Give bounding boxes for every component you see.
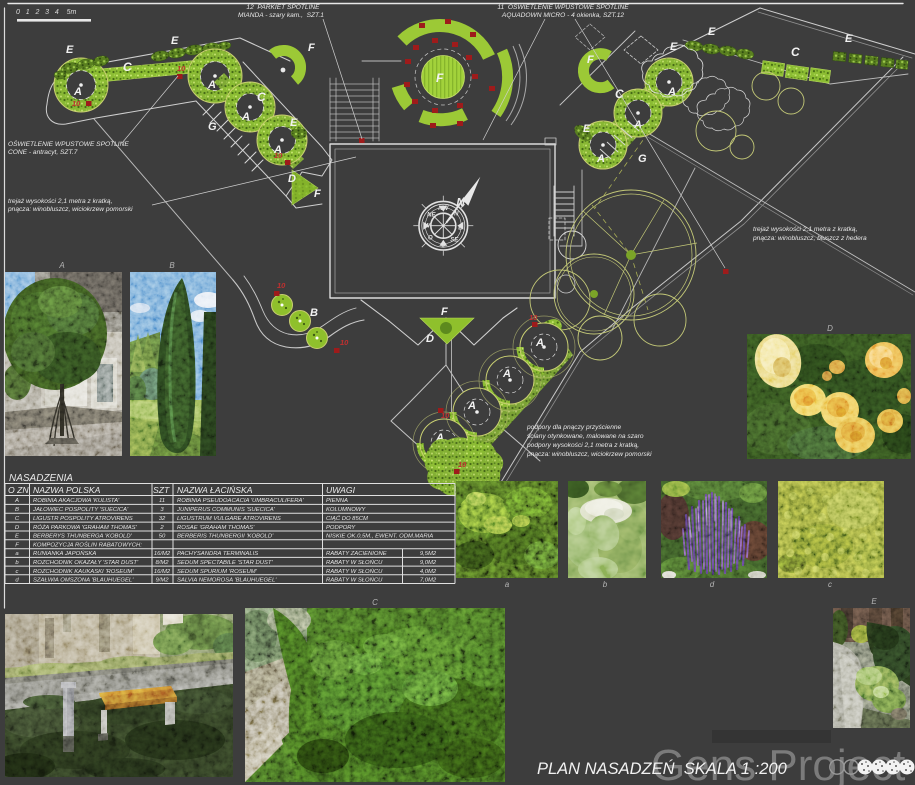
svg-text:10: 10 — [529, 313, 538, 322]
svg-text:ROSAE 'GRAHAM THOMAS': ROSAE 'GRAHAM THOMAS' — [177, 525, 255, 531]
svg-text:B: B — [15, 507, 19, 513]
svg-text:B: B — [169, 261, 175, 270]
svg-text:D: D — [15, 525, 20, 531]
svg-text:AQUADOWN MICRO - 4 okienka, SZ: AQUADOWN MICRO - 4 okienka, SZT.12 — [501, 12, 624, 19]
svg-text:16/M2: 16/M2 — [154, 551, 171, 557]
svg-text:pnącza: winobluszcz, bluszcz z: pnącza: winobluszcz, bluszcz z hedera — [752, 235, 867, 242]
svg-text:NAZWA POLSKA: NAZWA POLSKA — [33, 485, 101, 495]
svg-text:PODPORY: PODPORY — [326, 525, 356, 531]
svg-text:b: b — [603, 580, 608, 589]
svg-text:d: d — [710, 580, 715, 589]
svg-text:A: A — [596, 153, 605, 165]
svg-text:16/M2: 16/M2 — [154, 569, 171, 575]
svg-text:trejaż wysokości 2,1 metra z k: trejaż wysokości 2,1 metra z kratką, — [8, 198, 113, 205]
svg-text:SZAŁWIA OMSZONA 'BLAUHUEGEL': SZAŁWIA OMSZONA 'BLAUHUEGEL' — [33, 578, 134, 584]
svg-text:9,5M2: 9,5M2 — [420, 551, 437, 557]
svg-text:KOMPOZYCJA ROŚLIN RABATOWYCH:: KOMPOZYCJA ROŚLIN RABATOWYCH: — [33, 542, 142, 549]
svg-text:C: C — [15, 516, 20, 522]
svg-text:podpory wysokości 2,1 metra z: podpory wysokości 2,1 metra z kratką, — [526, 442, 639, 449]
svg-text:10: 10 — [441, 411, 450, 420]
svg-text:10: 10 — [72, 99, 81, 108]
svg-text:C: C — [615, 87, 624, 101]
svg-text:RUNIANKA JAPOŃSKA: RUNIANKA JAPOŃSKA — [33, 550, 96, 557]
svg-text:10: 10 — [277, 281, 286, 290]
svg-text:4,0M2: 4,0M2 — [420, 569, 437, 575]
svg-text:A: A — [502, 368, 511, 380]
svg-text:F: F — [441, 306, 448, 318]
svg-text:50: 50 — [159, 534, 166, 540]
svg-text:ROZCHODNIK OKAZAŁY 'STAR DUST': ROZCHODNIK OKAZAŁY 'STAR DUST' — [33, 560, 139, 566]
svg-text:O: O — [428, 236, 433, 242]
svg-text:E: E — [583, 123, 591, 135]
svg-text:ROZCHODNIK KAUKASKI 'ROSEUM': ROZCHODNIK KAUKASKI 'ROSEUM' — [33, 569, 134, 575]
svg-text:MIANDA - szary kam., SZT.1: MIANDA - szary kam., SZT.1 — [238, 12, 324, 19]
svg-text:E: E — [845, 33, 853, 45]
svg-text:7,0M2: 7,0M2 — [420, 578, 437, 584]
svg-text:C: C — [791, 45, 800, 59]
svg-text:F: F — [436, 71, 444, 85]
svg-text:PIENNA: PIENNA — [326, 498, 348, 504]
svg-text:KOLUMNOWY: KOLUMNOWY — [326, 507, 366, 513]
svg-text:OŚWIETLENIE WPUSTOWE SPOTLINE: OŚWIETLENIE WPUSTOWE SPOTLINE — [8, 139, 129, 148]
svg-text:11: 11 — [159, 498, 165, 504]
svg-text:N: N — [454, 212, 459, 218]
svg-text:2: 2 — [159, 525, 164, 531]
svg-text:JAŁOWIEC POSPOLITY 'SUECICA': JAŁOWIEC POSPOLITY 'SUECICA' — [32, 507, 129, 513]
svg-text:A: A — [467, 400, 476, 412]
svg-text:ROBINIA AKACJOWA 'KULISTA': ROBINIA AKACJOWA 'KULISTA' — [33, 498, 120, 504]
svg-text:G: G — [208, 121, 217, 133]
svg-text:9,0M2: 9,0M2 — [420, 560, 437, 566]
svg-text:ściany otynkowane, malowane na: ściany otynkowane, malowane na szaro — [527, 433, 644, 440]
svg-text:NE: NE — [427, 213, 436, 219]
svg-text:BERBERYS THUNBERGA 'KOBOLD': BERBERYS THUNBERGA 'KOBOLD' — [33, 534, 133, 540]
svg-text:C: C — [257, 90, 266, 104]
svg-text:RABATY W SŁOŃCU: RABATY W SŁOŃCU — [326, 559, 383, 566]
svg-text:32: 32 — [159, 516, 166, 522]
svg-text:10: 10 — [274, 151, 283, 160]
svg-text:8/M2: 8/M2 — [155, 560, 169, 566]
svg-text:A: A — [58, 261, 64, 270]
svg-text:12 PARKIET SPOTLINE: 12 PARKIET SPOTLINE — [246, 4, 320, 11]
svg-text:E: E — [171, 35, 179, 47]
svg-text:CONE - antracyt, SZT.7: CONE - antracyt, SZT.7 — [8, 149, 78, 156]
svg-text:NASADZENIA: NASADZENIA — [9, 473, 73, 484]
svg-text:A: A — [535, 337, 544, 349]
svg-text:O ZN: O ZN — [8, 485, 29, 495]
svg-text:D: D — [288, 173, 296, 185]
svg-text:F: F — [587, 54, 594, 66]
svg-text:UWAGI: UWAGI — [326, 485, 356, 495]
svg-text:D: D — [426, 333, 434, 345]
svg-text:NISKIE OK.0,5M., EWENT. ODM.MA: NISKIE OK.0,5M., EWENT. ODM.MARIA — [326, 534, 433, 540]
svg-text:S: S — [441, 243, 445, 249]
svg-text:SEDUM SPURIUM 'ROSEUM': SEDUM SPURIUM 'ROSEUM' — [177, 569, 258, 575]
svg-text:E: E — [66, 44, 74, 56]
svg-text:D: D — [827, 324, 833, 333]
svg-text:LIGUSTRUM VULGARE ATROVIRENS: LIGUSTRUM VULGARE ATROVIRENS — [177, 516, 281, 522]
svg-text:RABATY W SŁOŃCU: RABATY W SŁOŃCU — [326, 568, 383, 575]
svg-text:A: A — [73, 86, 82, 98]
svg-text:F: F — [314, 188, 321, 200]
svg-text:SZT: SZT — [153, 485, 170, 495]
svg-text:G: G — [638, 153, 647, 165]
svg-text:c: c — [828, 580, 832, 589]
svg-text:RABATY W SŁOŃCU: RABATY W SŁOŃCU — [326, 577, 383, 584]
svg-text:10: 10 — [340, 338, 349, 347]
svg-text:C: C — [123, 60, 132, 74]
svg-text:NAZWA ŁACIŃSKA: NAZWA ŁACIŃSKA — [177, 485, 253, 495]
svg-text:0 1 2 3 4 5m: 0 1 2 3 4 5m — [16, 9, 76, 16]
svg-text:podpory dla pnączy przyścienne: podpory dla pnączy przyścienne — [526, 424, 622, 431]
svg-text:CIĄĆ DO 85CM: CIĄĆ DO 85CM — [326, 515, 368, 522]
svg-text:ROBINIA PSEUDOACACIA 'UMBRACUL: ROBINIA PSEUDOACACIA 'UMBRACULIFERA' — [177, 498, 304, 504]
svg-text:N: N — [456, 196, 465, 210]
svg-text:NW: NW — [438, 206, 449, 212]
svg-text:F: F — [308, 42, 315, 54]
svg-text:RABATY ZACIENIONE: RABATY ZACIENIONE — [326, 551, 387, 557]
svg-text:pnącza: winobluszcz, wiciokrze: pnącza: winobluszcz, wiciokrzew pomorski — [526, 451, 652, 458]
svg-text:SEDUM SPECTABILE 'STAR DUST': SEDUM SPECTABILE 'STAR DUST' — [177, 560, 274, 566]
svg-text:A: A — [207, 79, 216, 91]
svg-text:B: B — [310, 307, 318, 319]
svg-text:E: E — [871, 597, 877, 606]
svg-text:SALVIA NEMOROSA 'BLAUHUEGEL': SALVIA NEMOROSA 'BLAUHUEGEL' — [177, 578, 277, 584]
svg-text:c: c — [16, 569, 19, 575]
svg-text:11 OŚWIETLENIE WPUSTOWE SPOTL: 11 OŚWIETLENIE WPUSTOWE SPOTLINE — [497, 2, 629, 11]
svg-text:E: E — [290, 117, 298, 129]
svg-text:E: E — [15, 534, 19, 540]
svg-text:9/M2: 9/M2 — [155, 578, 169, 584]
svg-text:F: F — [15, 543, 19, 549]
svg-text:C: C — [372, 598, 378, 607]
svg-text:JUNIPERUS COMMUNIS 'SUECICA': JUNIPERUS COMMUNIS 'SUECICA' — [176, 507, 276, 513]
svg-text:10: 10 — [458, 460, 467, 469]
svg-text:PLAN NASADZEŃ SKALA 1 :200: PLAN NASADZEŃ SKALA 1 :200 — [537, 759, 788, 778]
svg-text:RÓŻA PARKOWA 'GRAHAM THOMAS': RÓŻA PARKOWA 'GRAHAM THOMAS' — [33, 524, 138, 531]
svg-text:A: A — [14, 498, 19, 504]
svg-text:a: a — [505, 580, 510, 589]
svg-text:10: 10 — [177, 64, 186, 73]
svg-text:trejaż wysokości 2,1 metra z k: trejaż wysokości 2,1 metra z kratką, — [753, 226, 858, 233]
svg-text:BERBERIS THUNBERGII 'KOBOLD': BERBERIS THUNBERGII 'KOBOLD' — [177, 534, 274, 540]
svg-text:A: A — [241, 111, 250, 123]
svg-text:E: E — [708, 26, 716, 38]
svg-text:pnącza: winobluszcz, wiciokrze: pnącza: winobluszcz, wiciokrzew pomorski — [7, 206, 133, 213]
svg-text:PACHYSANDRA TERMINALIS: PACHYSANDRA TERMINALIS — [177, 551, 258, 557]
svg-text:LIGUSTR POSPOLITY ATROVIRENS: LIGUSTR POSPOLITY ATROVIRENS — [33, 516, 133, 522]
svg-text:SE: SE — [450, 238, 459, 244]
